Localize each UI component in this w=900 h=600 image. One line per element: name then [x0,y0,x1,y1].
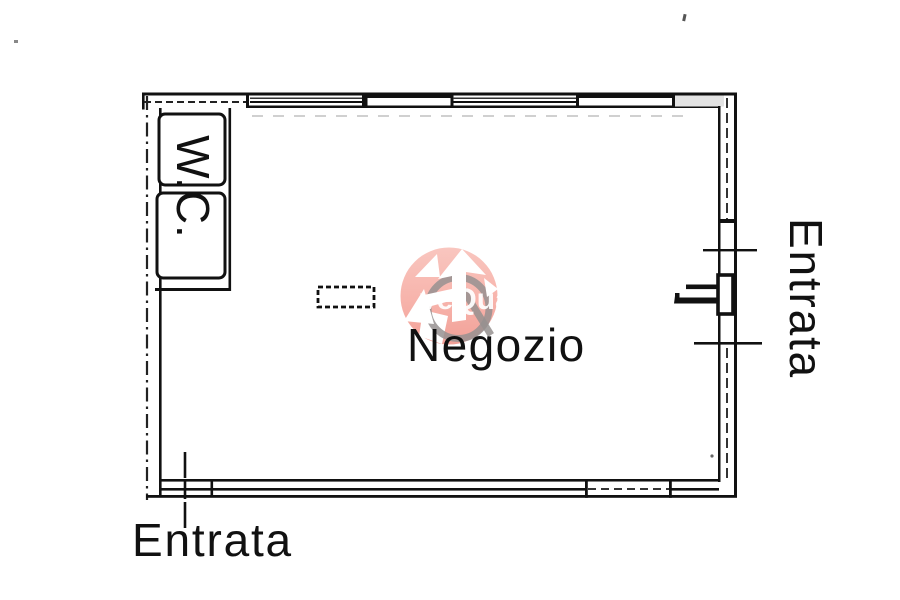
svg-text:W.C.: W.C. [167,135,219,239]
svg-text:Entrata: Entrata [780,218,832,379]
svg-text:Entrata: Entrata [132,514,293,566]
svg-text:Negozio: Negozio [407,319,586,371]
svg-text:veQuar: veQuar [420,283,524,316]
